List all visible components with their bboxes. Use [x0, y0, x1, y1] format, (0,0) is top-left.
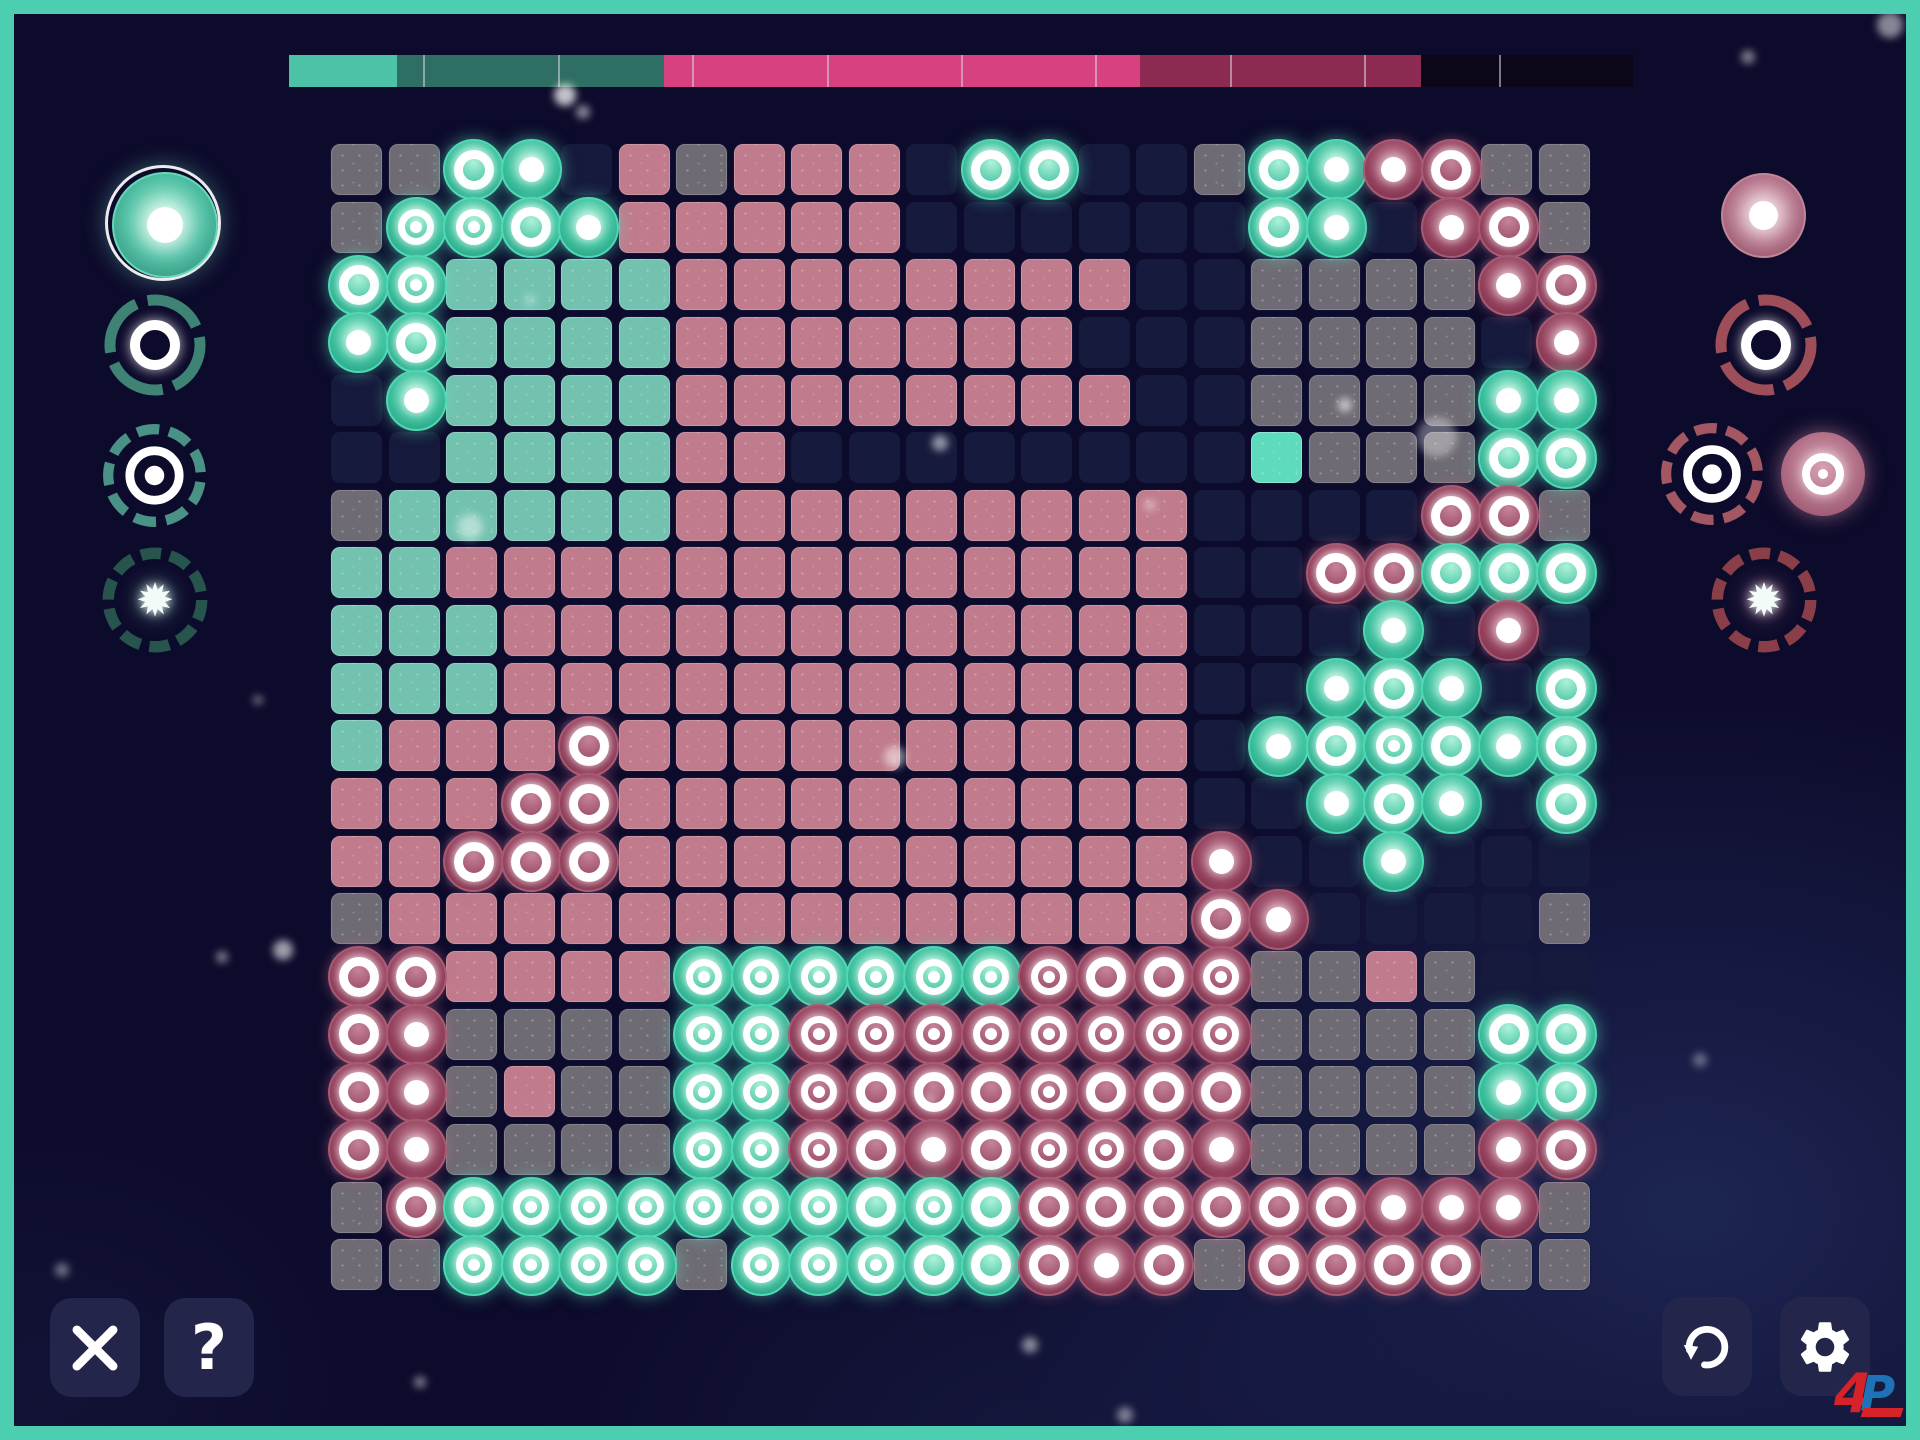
board-cell[interactable]	[788, 256, 846, 314]
board-cell[interactable]	[386, 1236, 444, 1294]
board-cell[interactable]	[1363, 1236, 1421, 1294]
board-cell[interactable]	[1191, 1236, 1249, 1294]
board-cell[interactable]	[1191, 1179, 1249, 1237]
board-cell[interactable]	[961, 1179, 1019, 1237]
board-cell[interactable]	[1133, 890, 1191, 948]
board-cell[interactable]	[1191, 372, 1249, 430]
board-cell[interactable]	[903, 1063, 961, 1121]
board-cell[interactable]	[1536, 775, 1594, 833]
board-cell[interactable]	[1421, 1121, 1479, 1179]
board-cell[interactable]	[1018, 1006, 1076, 1064]
board-cell[interactable]	[616, 256, 674, 314]
board-cell[interactable]	[731, 141, 789, 199]
board-cell[interactable]	[846, 948, 904, 1006]
board-cell[interactable]	[1076, 544, 1134, 602]
board-cell[interactable]	[1306, 1236, 1364, 1294]
board-cell[interactable]	[1248, 199, 1306, 257]
board-cell[interactable]	[1191, 1006, 1249, 1064]
board-cell[interactable]	[443, 948, 501, 1006]
board-cell[interactable]	[328, 1121, 386, 1179]
board-cell[interactable]	[386, 1006, 444, 1064]
board-cell[interactable]	[961, 602, 1019, 660]
board-cell[interactable]	[501, 141, 559, 199]
board-cell[interactable]	[846, 487, 904, 545]
board-cell[interactable]	[1421, 660, 1479, 718]
board-cell[interactable]	[1191, 775, 1249, 833]
board-cell[interactable]	[616, 1236, 674, 1294]
board-cell[interactable]	[1363, 199, 1421, 257]
board-cell[interactable]	[616, 1121, 674, 1179]
board-cell[interactable]	[1363, 256, 1421, 314]
board-cell[interactable]	[386, 890, 444, 948]
board-cell[interactable]	[501, 1179, 559, 1237]
board-cell[interactable]	[1363, 1121, 1421, 1179]
board-cell[interactable]	[501, 602, 559, 660]
board-cell[interactable]	[788, 199, 846, 257]
board-cell[interactable]	[1536, 602, 1594, 660]
board-cell[interactable]	[673, 256, 731, 314]
board-cell[interactable]	[731, 429, 789, 487]
board-cell[interactable]	[846, 429, 904, 487]
board-cell[interactable]	[443, 1006, 501, 1064]
board-cell[interactable]	[1478, 544, 1536, 602]
board-cell[interactable]	[1248, 314, 1306, 372]
board-cell[interactable]	[328, 544, 386, 602]
board-cell[interactable]	[443, 890, 501, 948]
board-cell[interactable]	[386, 314, 444, 372]
board-cell[interactable]	[903, 890, 961, 948]
board-cell[interactable]	[1306, 948, 1364, 1006]
board-cell[interactable]	[673, 487, 731, 545]
board-cell[interactable]	[903, 1121, 961, 1179]
board-cell[interactable]	[1536, 948, 1594, 1006]
board-cell[interactable]	[1421, 890, 1479, 948]
board-cell[interactable]	[1421, 1006, 1479, 1064]
board-cell[interactable]	[328, 487, 386, 545]
board-cell[interactable]	[1421, 1179, 1479, 1237]
board-cell[interactable]	[903, 487, 961, 545]
board-cell[interactable]	[673, 429, 731, 487]
board-cell[interactable]	[386, 141, 444, 199]
board-cell[interactable]	[1421, 948, 1479, 1006]
board-cell[interactable]	[1133, 199, 1191, 257]
board-cell[interactable]	[328, 1236, 386, 1294]
board-cell[interactable]	[443, 141, 501, 199]
undo-button[interactable]	[1662, 1297, 1752, 1396]
board-cell[interactable]	[616, 1179, 674, 1237]
board-cell[interactable]	[673, 1236, 731, 1294]
board-cell[interactable]	[1191, 1063, 1249, 1121]
board-cell[interactable]	[1248, 660, 1306, 718]
board-cell[interactable]	[558, 487, 616, 545]
board-cell[interactable]	[1306, 1006, 1364, 1064]
board-cell[interactable]	[386, 372, 444, 430]
board-cell[interactable]	[1536, 314, 1594, 372]
board-cell[interactable]	[1248, 717, 1306, 775]
board-cell[interactable]	[558, 314, 616, 372]
board-cell[interactable]	[846, 1006, 904, 1064]
board-cell[interactable]	[731, 1063, 789, 1121]
board-cell[interactable]	[788, 948, 846, 1006]
board-cell[interactable]	[1018, 1063, 1076, 1121]
board-cell[interactable]	[386, 948, 444, 1006]
board-cell[interactable]	[558, 1236, 616, 1294]
board-cell[interactable]	[1478, 314, 1536, 372]
board-cell[interactable]	[673, 1179, 731, 1237]
board-cell[interactable]	[443, 717, 501, 775]
board-cell[interactable]	[673, 141, 731, 199]
board-cell[interactable]	[1018, 199, 1076, 257]
board-cell[interactable]	[1478, 948, 1536, 1006]
board-cell[interactable]	[1536, 1063, 1594, 1121]
board-cell[interactable]	[673, 1121, 731, 1179]
board-cell[interactable]	[673, 1063, 731, 1121]
board-cell[interactable]	[443, 199, 501, 257]
board-cell[interactable]	[1363, 602, 1421, 660]
board-cell[interactable]	[1363, 1179, 1421, 1237]
board-cell[interactable]	[1018, 1179, 1076, 1237]
board-cell[interactable]	[1133, 602, 1191, 660]
game-board[interactable]	[328, 141, 1593, 1294]
board-cell[interactable]	[501, 775, 559, 833]
board-cell[interactable]	[1248, 1063, 1306, 1121]
board-cell[interactable]	[846, 660, 904, 718]
board-cell[interactable]	[1191, 833, 1249, 891]
board-cell[interactable]	[616, 199, 674, 257]
board-cell[interactable]	[1363, 487, 1421, 545]
board-cell[interactable]	[1018, 141, 1076, 199]
board-cell[interactable]	[1076, 1006, 1134, 1064]
board-cell[interactable]	[961, 1121, 1019, 1179]
board-cell[interactable]	[616, 314, 674, 372]
board-cell[interactable]	[443, 429, 501, 487]
board-cell[interactable]	[1536, 256, 1594, 314]
board-cell[interactable]	[1018, 1121, 1076, 1179]
board-cell[interactable]	[846, 141, 904, 199]
board-cell[interactable]	[443, 1179, 501, 1237]
board-cell[interactable]	[1363, 141, 1421, 199]
board-cell[interactable]	[1536, 544, 1594, 602]
board-cell[interactable]	[1306, 717, 1364, 775]
board-cell[interactable]	[788, 1236, 846, 1294]
board-cell[interactable]	[731, 1006, 789, 1064]
board-cell[interactable]	[1421, 775, 1479, 833]
board-cell[interactable]	[788, 717, 846, 775]
board-cell[interactable]	[1536, 833, 1594, 891]
board-cell[interactable]	[731, 314, 789, 372]
board-cell[interactable]	[788, 544, 846, 602]
right-dot-brush[interactable]	[1721, 173, 1806, 258]
board-cell[interactable]	[1421, 833, 1479, 891]
board-cell[interactable]	[616, 372, 674, 430]
board-cell[interactable]	[501, 948, 559, 1006]
board-cell[interactable]	[616, 487, 674, 545]
board-cell[interactable]	[1191, 948, 1249, 1006]
board-cell[interactable]	[1018, 429, 1076, 487]
board-cell[interactable]	[1076, 256, 1134, 314]
board-cell[interactable]	[443, 1063, 501, 1121]
board-cell[interactable]	[1536, 1006, 1594, 1064]
board-cell[interactable]	[1248, 1236, 1306, 1294]
board-cell[interactable]	[1363, 948, 1421, 1006]
board-cell[interactable]	[1191, 717, 1249, 775]
board-cell[interactable]	[616, 1006, 674, 1064]
board-cell[interactable]	[1536, 487, 1594, 545]
board-cell[interactable]	[1133, 1236, 1191, 1294]
board-cell[interactable]	[788, 1063, 846, 1121]
board-cell[interactable]	[1363, 314, 1421, 372]
board-cell[interactable]	[1191, 544, 1249, 602]
board-cell[interactable]	[328, 1179, 386, 1237]
board-cell[interactable]	[443, 544, 501, 602]
board-cell[interactable]	[328, 429, 386, 487]
right-ring-brush[interactable]	[1714, 293, 1818, 397]
board-cell[interactable]	[1478, 487, 1536, 545]
board-cell[interactable]	[1018, 890, 1076, 948]
board-cell[interactable]	[1133, 948, 1191, 1006]
board-cell[interactable]	[616, 544, 674, 602]
board-cell[interactable]	[1076, 775, 1134, 833]
board-cell[interactable]	[1478, 372, 1536, 430]
board-cell[interactable]	[731, 1179, 789, 1237]
board-cell[interactable]	[328, 717, 386, 775]
board-cell[interactable]	[328, 890, 386, 948]
board-cell[interactable]	[903, 429, 961, 487]
board-cell[interactable]	[558, 429, 616, 487]
board-cell[interactable]	[1478, 1121, 1536, 1179]
board-cell[interactable]	[1478, 890, 1536, 948]
board-cell[interactable]	[1478, 199, 1536, 257]
board-cell[interactable]	[558, 775, 616, 833]
board-cell[interactable]	[673, 833, 731, 891]
board-cell[interactable]	[1076, 660, 1134, 718]
board-cell[interactable]	[1248, 948, 1306, 1006]
board-cell[interactable]	[1478, 141, 1536, 199]
board-cell[interactable]	[1306, 775, 1364, 833]
board-cell[interactable]	[1306, 199, 1364, 257]
board-cell[interactable]	[961, 660, 1019, 718]
board-cell[interactable]	[1133, 1121, 1191, 1179]
board-cell[interactable]	[443, 1121, 501, 1179]
board-cell[interactable]	[1076, 1179, 1134, 1237]
board-cell[interactable]	[846, 890, 904, 948]
board-cell[interactable]	[1076, 372, 1134, 430]
board-cell[interactable]	[1421, 372, 1479, 430]
board-cell[interactable]	[328, 1006, 386, 1064]
right-target-brush-selected[interactable]	[1659, 421, 1765, 527]
board-cell[interactable]	[1306, 314, 1364, 372]
board-cell[interactable]	[1191, 429, 1249, 487]
board-cell[interactable]	[1191, 890, 1249, 948]
board-cell[interactable]	[1536, 717, 1594, 775]
board-cell[interactable]	[1363, 775, 1421, 833]
board-cell[interactable]	[1018, 833, 1076, 891]
board-cell[interactable]	[673, 372, 731, 430]
board-cell[interactable]	[1018, 487, 1076, 545]
board-cell[interactable]	[558, 1063, 616, 1121]
board-cell[interactable]	[1076, 314, 1134, 372]
right-burst-brush[interactable]: ✹	[1710, 546, 1818, 654]
board-cell[interactable]	[731, 1236, 789, 1294]
board-cell[interactable]	[443, 372, 501, 430]
board-cell[interactable]	[558, 199, 616, 257]
board-cell[interactable]	[1018, 660, 1076, 718]
board-cell[interactable]	[1191, 314, 1249, 372]
board-cell[interactable]	[731, 544, 789, 602]
board-cell[interactable]	[616, 890, 674, 948]
board-cell[interactable]	[1191, 487, 1249, 545]
board-cell[interactable]	[1536, 372, 1594, 430]
board-cell[interactable]	[501, 372, 559, 430]
board-cell[interactable]	[1421, 429, 1479, 487]
board-cell[interactable]	[1478, 1063, 1536, 1121]
board-cell[interactable]	[961, 948, 1019, 1006]
board-cell[interactable]	[1306, 372, 1364, 430]
board-cell[interactable]	[961, 256, 1019, 314]
board-cell[interactable]	[961, 890, 1019, 948]
board-cell[interactable]	[846, 314, 904, 372]
board-cell[interactable]	[1363, 660, 1421, 718]
board-cell[interactable]	[386, 1179, 444, 1237]
board-cell[interactable]	[1363, 1063, 1421, 1121]
board-cell[interactable]	[386, 602, 444, 660]
board-cell[interactable]	[1076, 890, 1134, 948]
board-cell[interactable]	[903, 199, 961, 257]
left-dot-brush-selected[interactable]	[105, 165, 221, 281]
board-cell[interactable]	[386, 775, 444, 833]
board-cell[interactable]	[386, 544, 444, 602]
left-ring-brush[interactable]	[103, 293, 207, 397]
board-cell[interactable]	[501, 660, 559, 718]
board-cell[interactable]	[1076, 429, 1134, 487]
board-cell[interactable]	[1306, 487, 1364, 545]
board-cell[interactable]	[1248, 1121, 1306, 1179]
board-cell[interactable]	[1306, 141, 1364, 199]
board-cell[interactable]	[1133, 775, 1191, 833]
board-cell[interactable]	[846, 602, 904, 660]
board-cell[interactable]	[1306, 429, 1364, 487]
board-cell[interactable]	[731, 717, 789, 775]
board-cell[interactable]	[1076, 717, 1134, 775]
board-cell[interactable]	[846, 1179, 904, 1237]
board-cell[interactable]	[788, 314, 846, 372]
board-cell[interactable]	[903, 717, 961, 775]
board-cell[interactable]	[731, 487, 789, 545]
board-cell[interactable]	[501, 429, 559, 487]
board-cell[interactable]	[1018, 1236, 1076, 1294]
board-cell[interactable]	[1133, 544, 1191, 602]
board-cell[interactable]	[443, 660, 501, 718]
board-cell[interactable]	[903, 1236, 961, 1294]
board-cell[interactable]	[386, 660, 444, 718]
board-cell[interactable]	[443, 833, 501, 891]
board-cell[interactable]	[846, 717, 904, 775]
board-cell[interactable]	[731, 602, 789, 660]
board-cell[interactable]	[501, 890, 559, 948]
board-cell[interactable]	[961, 1063, 1019, 1121]
board-cell[interactable]	[1536, 660, 1594, 718]
board-cell[interactable]	[846, 199, 904, 257]
board-cell[interactable]	[1133, 833, 1191, 891]
board-cell[interactable]	[1076, 141, 1134, 199]
board-cell[interactable]	[961, 314, 1019, 372]
board-cell[interactable]	[1133, 717, 1191, 775]
board-cell[interactable]	[731, 775, 789, 833]
board-cell[interactable]	[616, 775, 674, 833]
board-cell[interactable]	[1076, 487, 1134, 545]
board-cell[interactable]	[673, 948, 731, 1006]
board-cell[interactable]	[1421, 544, 1479, 602]
board-cell[interactable]	[443, 602, 501, 660]
board-cell[interactable]	[1248, 833, 1306, 891]
board-cell[interactable]	[1363, 890, 1421, 948]
board-cell[interactable]	[1536, 199, 1594, 257]
board-cell[interactable]	[328, 314, 386, 372]
board-cell[interactable]	[961, 199, 1019, 257]
board-cell[interactable]	[1306, 833, 1364, 891]
board-cell[interactable]	[1018, 602, 1076, 660]
board-cell[interactable]	[1536, 1179, 1594, 1237]
board-cell[interactable]	[788, 660, 846, 718]
board-cell[interactable]	[558, 890, 616, 948]
board-cell[interactable]	[846, 256, 904, 314]
board-cell[interactable]	[558, 717, 616, 775]
board-cell[interactable]	[1076, 602, 1134, 660]
board-cell[interactable]	[1076, 833, 1134, 891]
board-cell[interactable]	[903, 256, 961, 314]
board-cell[interactable]	[1478, 717, 1536, 775]
board-cell[interactable]	[558, 602, 616, 660]
board-cell[interactable]	[731, 372, 789, 430]
board-cell[interactable]	[1306, 1179, 1364, 1237]
board-cell[interactable]	[961, 544, 1019, 602]
board-cell[interactable]	[788, 141, 846, 199]
board-cell[interactable]	[788, 372, 846, 430]
board-cell[interactable]	[1076, 1236, 1134, 1294]
board-cell[interactable]	[1536, 890, 1594, 948]
close-button[interactable]	[50, 1298, 140, 1397]
board-cell[interactable]	[1018, 372, 1076, 430]
board-cell[interactable]	[501, 487, 559, 545]
board-cell[interactable]	[386, 199, 444, 257]
board-cell[interactable]	[903, 141, 961, 199]
board-cell[interactable]	[1478, 1236, 1536, 1294]
board-cell[interactable]	[328, 141, 386, 199]
board-cell[interactable]	[1018, 948, 1076, 1006]
board-cell[interactable]	[1421, 141, 1479, 199]
board-cell[interactable]	[1478, 1006, 1536, 1064]
board-cell[interactable]	[1421, 256, 1479, 314]
board-cell[interactable]	[961, 833, 1019, 891]
board-cell[interactable]	[903, 948, 961, 1006]
board-cell[interactable]	[673, 199, 731, 257]
board-cell[interactable]	[1133, 141, 1191, 199]
board-cell[interactable]	[616, 1063, 674, 1121]
board-cell[interactable]	[1363, 1006, 1421, 1064]
board-cell[interactable]	[788, 775, 846, 833]
board-cell[interactable]	[1018, 544, 1076, 602]
board-cell[interactable]	[1536, 1236, 1594, 1294]
board-cell[interactable]	[328, 775, 386, 833]
board-cell[interactable]	[903, 544, 961, 602]
board-cell[interactable]	[616, 948, 674, 1006]
board-cell[interactable]	[1076, 1121, 1134, 1179]
board-cell[interactable]	[443, 775, 501, 833]
board-cell[interactable]	[558, 1006, 616, 1064]
board-cell[interactable]	[1478, 256, 1536, 314]
board-cell[interactable]	[1133, 256, 1191, 314]
board-cell[interactable]	[1478, 660, 1536, 718]
